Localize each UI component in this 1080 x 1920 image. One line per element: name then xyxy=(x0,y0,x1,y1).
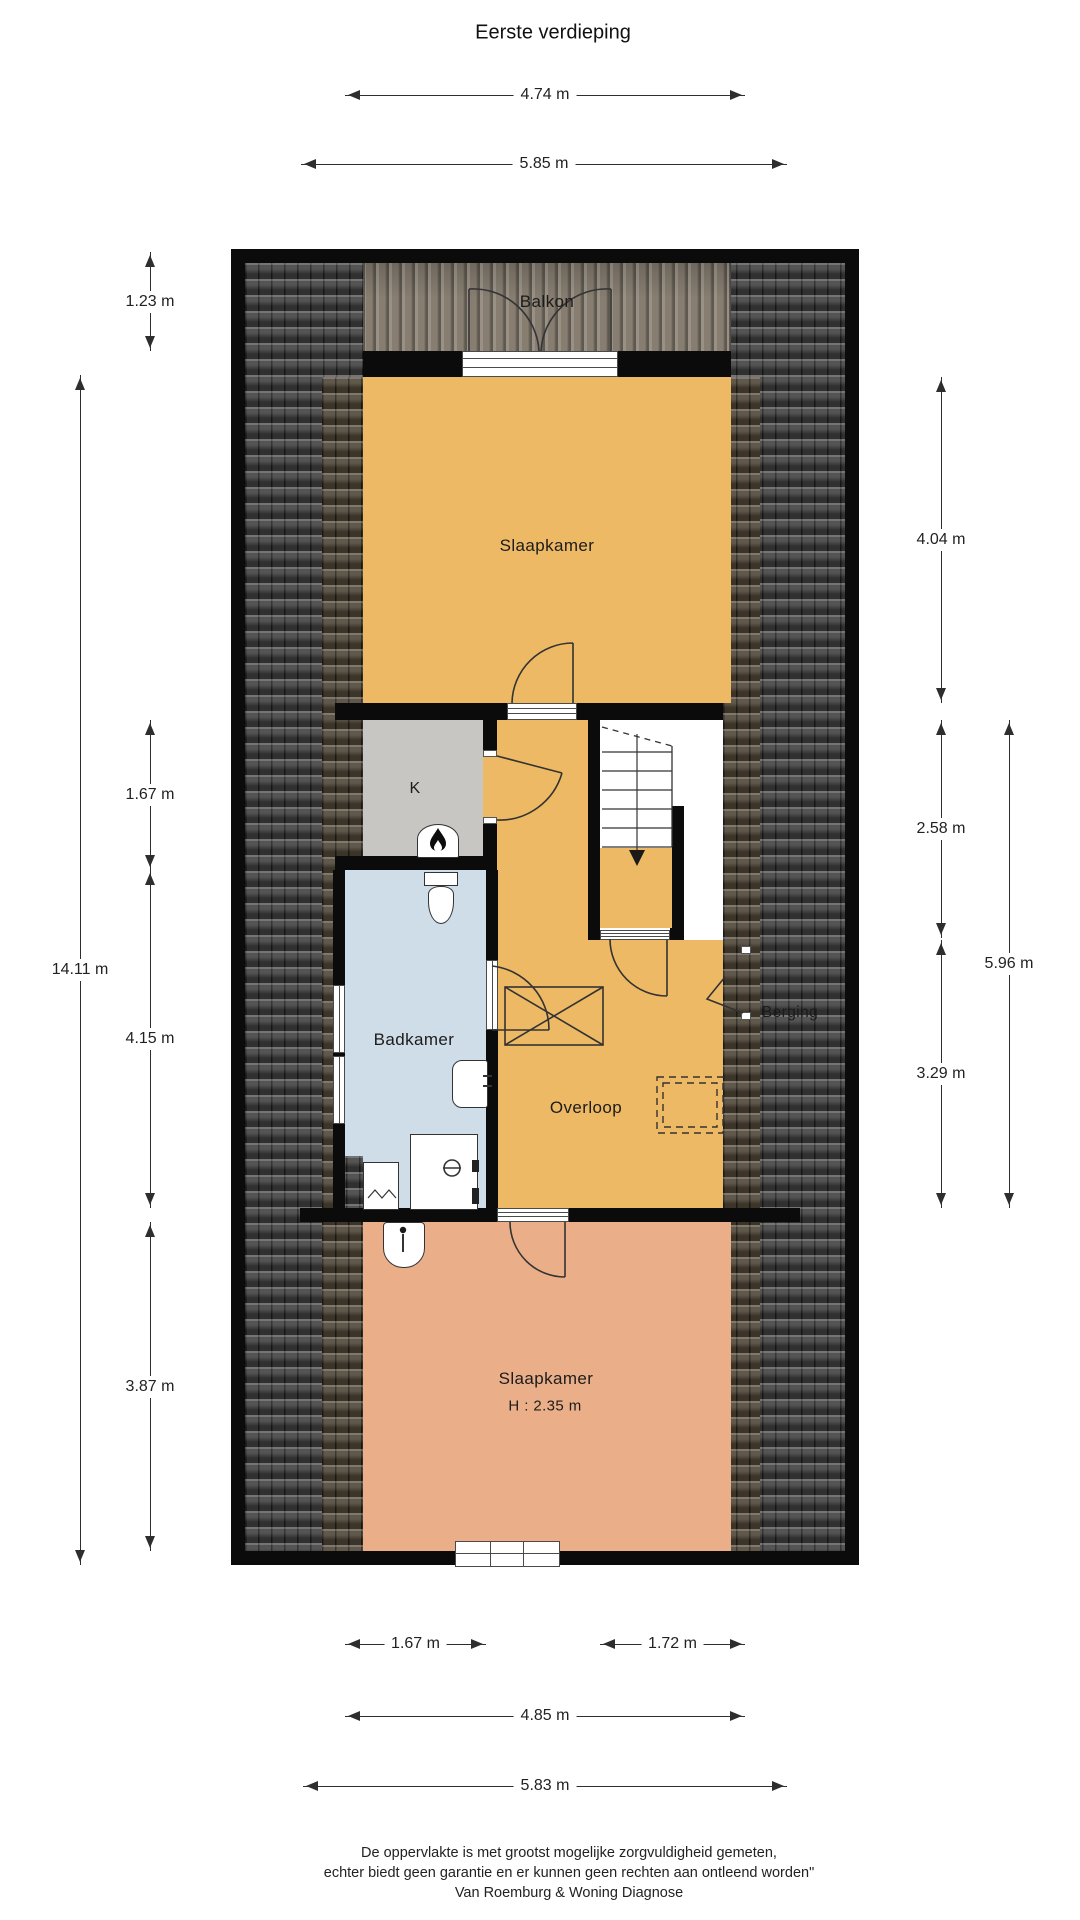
disclaimer-line-2: echter biedt geen garantie en er kunnen … xyxy=(324,1863,814,1883)
arrow-left-icon xyxy=(598,1639,615,1649)
dim-right-404: 4.04 m xyxy=(941,377,942,703)
room-label-slaapkamer-boven: Slaapkamer xyxy=(500,536,595,556)
room-label-balkon: Balkon xyxy=(520,292,574,312)
arrow-down-icon xyxy=(145,336,155,353)
arrow-down-icon xyxy=(145,1193,155,1210)
dim-left-415: 4.15 m xyxy=(150,870,151,1208)
arrow-right-icon xyxy=(471,1639,488,1649)
room-label-k: K xyxy=(409,780,420,798)
room-label-badkamer: Badkamer xyxy=(374,1030,455,1050)
page-title: Eerste verdieping xyxy=(475,22,631,45)
arrow-up-icon xyxy=(936,718,946,735)
disclaimer: De oppervlakte is met grootst mogelijke … xyxy=(324,1843,814,1903)
arrow-left-icon xyxy=(343,90,360,100)
dim-right-596: 5.96 m xyxy=(1009,720,1010,1208)
arrow-down-icon xyxy=(936,1193,946,1210)
bedroom-sink-faucet-dot xyxy=(400,1227,406,1233)
bedroom-bottom-door-swing xyxy=(510,1222,565,1277)
arrow-up-icon xyxy=(145,1220,155,1237)
arrow-down-icon xyxy=(145,1536,155,1553)
disclaimer-line-1: De oppervlakte is met grootst mogelijke … xyxy=(324,1843,814,1863)
arrow-up-icon xyxy=(936,375,946,392)
berging-door-leaf xyxy=(707,977,743,1013)
arrow-up-icon xyxy=(936,938,946,955)
dim-bottom-583: 5.83 m xyxy=(303,1786,787,1787)
arrow-up-icon xyxy=(145,868,155,885)
dim-top-585: 5.85 m xyxy=(301,164,787,165)
dim-left-167: 1.67 m xyxy=(150,720,151,870)
room-label-slaapkamer-onder: Slaapkamer xyxy=(499,1369,594,1389)
floorplan-page: { "title": "Eerste verdieping", "rooms":… xyxy=(0,0,1080,1920)
plan-linework xyxy=(231,249,859,1565)
room-label-overloop: Overloop xyxy=(550,1098,622,1118)
dim-right-329: 3.29 m xyxy=(941,940,942,1208)
shower-tap-1 xyxy=(472,1160,479,1172)
arrow-right-icon xyxy=(772,1781,789,1791)
dim-left-387: 3.87 m xyxy=(150,1222,151,1551)
dim-right-258: 2.58 m xyxy=(941,720,942,938)
washer-symbol xyxy=(368,1190,396,1198)
dim-left-123: 1.23 m xyxy=(150,252,151,351)
dim-bottom-167: 1.67 m xyxy=(345,1644,486,1645)
bathroom-sink-faucet xyxy=(483,1076,492,1086)
closet-door-swing xyxy=(497,756,562,820)
arrow-down-icon xyxy=(936,688,946,705)
arrow-up-icon xyxy=(145,718,155,735)
disclaimer-line-3: Van Roemburg & Woning Diagnose xyxy=(324,1883,814,1903)
stairwell-void-cross xyxy=(505,987,603,1045)
arrow-right-icon xyxy=(772,159,789,169)
arrow-up-icon xyxy=(145,250,155,267)
bedroom-top-door-swing xyxy=(512,643,573,703)
arrow-up-icon xyxy=(1004,718,1014,735)
arrow-left-icon xyxy=(301,1781,318,1791)
bathroom-door-swing xyxy=(492,966,549,1030)
arrow-down-icon xyxy=(1004,1193,1014,1210)
arrow-left-icon xyxy=(299,159,316,169)
dim-bottom-172: 1.72 m xyxy=(600,1644,745,1645)
shower-tap-2 xyxy=(472,1188,479,1204)
room-label-berging: Berging xyxy=(762,1004,818,1022)
dim-left-1411: 14.11 m xyxy=(80,375,81,1565)
arrow-up-icon xyxy=(75,373,85,390)
dim-top-474: 4.74 m xyxy=(345,95,745,96)
arrow-down-icon xyxy=(75,1550,85,1567)
arrow-left-icon xyxy=(343,1639,360,1649)
arrow-right-icon xyxy=(730,90,747,100)
arrow-left-icon xyxy=(343,1711,360,1721)
arrow-right-icon xyxy=(730,1639,747,1649)
overloop-hatch-dashed xyxy=(657,1077,723,1133)
room-label-slaapkamer-onder-hoogte: H : 2.35 m xyxy=(508,1398,581,1415)
stairs-down-arrow-icon xyxy=(629,850,645,866)
dim-bottom-485: 4.85 m xyxy=(345,1716,745,1717)
stairs-door-swing xyxy=(610,939,667,996)
arrow-right-icon xyxy=(730,1711,747,1721)
